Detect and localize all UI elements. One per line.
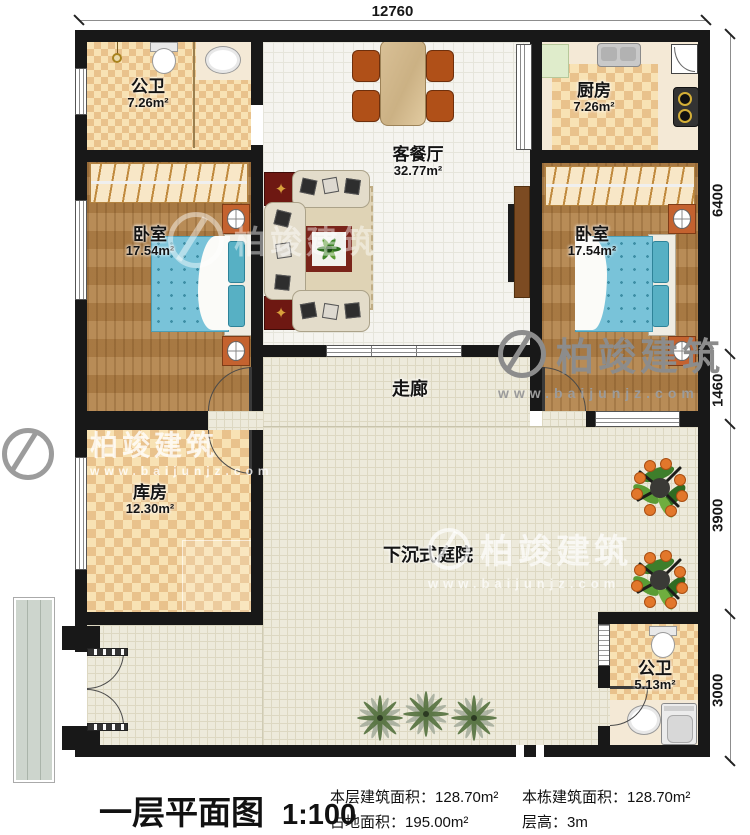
wall-bath-bottom-left-b: [598, 726, 610, 745]
wardrobe-bedroom-left: [90, 163, 248, 203]
nightstand: [222, 204, 250, 234]
dining-chair: [426, 50, 454, 82]
window-bedroom-left: [75, 200, 87, 300]
wall-bedroom-left-bottom: [87, 411, 208, 430]
lamp-icon: [673, 209, 691, 229]
window-storage: [75, 457, 87, 570]
floor-bedroom-right-door-gap: [542, 411, 586, 427]
wall-bottom-post: [516, 745, 524, 757]
wall-bath-bottom-top: [598, 612, 698, 624]
room-area: 7.26m²: [127, 96, 168, 110]
sofa-cushion: [300, 178, 318, 196]
entrance-opening: [75, 652, 87, 726]
coffee-table-plant-icon: [313, 233, 345, 265]
tv-cabinet: [514, 186, 530, 298]
dining-chair: [352, 90, 380, 122]
plan-title: 一层平面图: [99, 786, 264, 834]
wall-storage-bottom: [87, 612, 263, 625]
orange-tree-icon: [628, 548, 692, 612]
entrance-steps: [14, 598, 54, 782]
wall-bedroom-right-bottom-a: [586, 411, 595, 427]
corner-cabinet-icon: [671, 44, 698, 74]
toilet-bowl-icon: [651, 632, 675, 658]
sink-icon-bath-top: [205, 46, 241, 74]
stat-floor-area: 本层建筑面积：128.70m²: [330, 786, 498, 807]
wall-living-south-b: [462, 345, 530, 357]
orange-tree-icon: [628, 456, 692, 520]
door-leaf: [249, 430, 252, 474]
dim-value: 3900: [710, 498, 727, 531]
wall-bath-top-bottom: [87, 150, 263, 162]
pillow: [652, 285, 669, 327]
dim-value: 3000: [710, 673, 727, 706]
watermark-logo-icon: [2, 428, 54, 480]
pillow: [228, 241, 245, 283]
entrance-door-leaf: [87, 648, 128, 656]
room-area: 5.13m²: [634, 678, 675, 692]
dim-value: 6400: [710, 183, 727, 216]
wall-top: [75, 30, 710, 42]
door-leaf: [249, 367, 252, 411]
wardrobe-bedroom-right: [545, 166, 695, 206]
room-name: 公卫: [127, 78, 168, 96]
lamp-icon: [673, 341, 691, 361]
stat-floor-height: 层高：3m: [522, 811, 588, 832]
toilet-bowl-icon: [152, 48, 176, 74]
dim-line-top: [80, 20, 707, 21]
sofa-cushion: [344, 302, 360, 318]
window-bedroom-right-south: [595, 411, 680, 427]
room-name: 卧室: [126, 226, 174, 244]
stat-label: 本层建筑面积：: [330, 789, 435, 806]
lamp-icon: [227, 341, 245, 361]
wall-bedroom-left-right: [251, 145, 263, 411]
stat-label: 占地面积：: [330, 814, 405, 831]
wall-bedroom-right-bottom-b: [680, 411, 698, 427]
room-name: 走廊: [392, 380, 428, 399]
sofa-cushion: [273, 209, 291, 227]
room-name: 库房: [126, 484, 174, 502]
stat-value: 128.70m²: [627, 789, 690, 806]
window-bath-bottom-louver: [598, 624, 610, 666]
pillow: [228, 285, 245, 327]
wall-bath-bottom-left-a: [598, 666, 610, 688]
dim-right-3900: 3900: [706, 475, 730, 555]
entrance-door-leaf: [87, 723, 128, 731]
floor-door-vestibule: [208, 411, 263, 430]
wall-storage-right: [251, 430, 263, 612]
stat-site-area: 占地面积：195.00m²: [330, 811, 468, 832]
room-label-bedroom-left: 卧室 17.54m²: [126, 226, 174, 258]
room-name: 厨房: [573, 82, 614, 100]
sofa-cushion: [322, 303, 339, 320]
tv-icon: [508, 204, 514, 282]
ghost-table: [182, 540, 262, 622]
room-name: 客餐厅: [393, 146, 444, 164]
corner-cabinet-curve: [674, 47, 695, 72]
room-label-bath-bottom: 公卫 5.13m²: [634, 660, 675, 692]
dim-right-1460: 1460: [706, 350, 730, 430]
room-label-corridor: 走廊: [392, 380, 428, 399]
stat-value: 195.00m²: [405, 814, 468, 831]
dim-top-label: 12760: [75, 2, 710, 20]
washing-machine-icon: [661, 703, 697, 745]
washer-panel: [664, 706, 694, 711]
sofa-bottom: [292, 290, 370, 332]
dining-chair: [352, 50, 380, 82]
stat-building-area: 本栋建筑面积：128.70m²: [522, 786, 690, 807]
dim-value: 1460: [710, 373, 727, 406]
room-label-bath-top: 公卫 7.26m²: [127, 78, 168, 110]
wall-bath-top-right-upper: [251, 42, 263, 105]
dining-table: [380, 40, 426, 126]
room-area: 7.26m²: [573, 100, 614, 114]
sofa-cushion: [344, 178, 361, 195]
lamp-icon: [227, 209, 245, 229]
stat-value: 128.70m²: [435, 789, 498, 806]
window-bath-top: [75, 68, 87, 115]
wall-bottom: [75, 745, 710, 757]
room-label-storage: 库房 12.30m²: [126, 484, 174, 516]
room-label-living-dining: 客餐厅 32.77m²: [393, 146, 444, 178]
bath-top-partition: [193, 42, 195, 148]
stat-label: 本栋建筑面积：: [522, 789, 627, 806]
stat-value: 3m: [567, 814, 588, 831]
pillow: [652, 241, 669, 283]
wall-bedroom-right-left: [530, 163, 542, 411]
kitchen-sink-basin: [601, 47, 617, 61]
room-area: 17.54m²: [126, 244, 174, 258]
kitchen-sink-basin: [620, 47, 636, 61]
sofa-cushion: [275, 242, 292, 259]
dim-right-3000: 3000: [706, 650, 730, 730]
dim-right-6400: 6400: [706, 160, 730, 240]
sofa-cushion: [322, 177, 339, 194]
plan-title-block: 一层平面图 1:100: [95, 786, 366, 835]
fern-plant-icon: [446, 690, 502, 746]
room-label-courtyard: 下沉式庭院: [383, 546, 473, 565]
dining-chair: [426, 90, 454, 122]
dim-value: 12760: [372, 3, 414, 20]
nightstand: [668, 204, 696, 234]
burner-icon: [678, 92, 692, 106]
room-label-bedroom-right: 卧室 17.54m²: [568, 226, 616, 258]
shower-icon: [112, 53, 122, 63]
washer-drum: [667, 715, 693, 743]
room-area: 17.54m²: [568, 244, 616, 258]
nightstand: [222, 336, 250, 366]
kitchen-sliding-door: [516, 44, 532, 150]
kitchen-sink-icon: [597, 43, 641, 67]
door-leaf: [542, 367, 545, 411]
bed-left-sheet: [198, 236, 230, 330]
room-label-kitchen: 厨房 7.26m²: [573, 82, 614, 114]
courtyard-edge-line: [262, 625, 263, 745]
wall-bottom-post: [536, 745, 544, 757]
nightstand: [668, 336, 696, 366]
dim-line-right: [730, 35, 731, 763]
sofa-cushion: [300, 302, 317, 319]
burner-icon: [678, 109, 692, 123]
wall-living-south-a: [263, 345, 326, 357]
sofa-left: [264, 202, 306, 300]
sofa-top: [292, 170, 370, 208]
room-area: 12.30m²: [126, 502, 174, 516]
floor-plan-canvas: ✦ ✦: [0, 0, 750, 835]
wall-kitchen-bottom: [530, 150, 698, 163]
room-name: 下沉式庭院: [383, 546, 473, 565]
sofa-cushion: [274, 274, 290, 290]
room-name: 卧室: [568, 226, 616, 244]
stove-icon: [673, 87, 699, 127]
column: [62, 626, 100, 650]
window-living-south: [326, 345, 462, 357]
room-name: 公卫: [634, 660, 675, 678]
room-area: 32.77m²: [393, 164, 444, 178]
stat-label: 层高：: [522, 814, 567, 831]
